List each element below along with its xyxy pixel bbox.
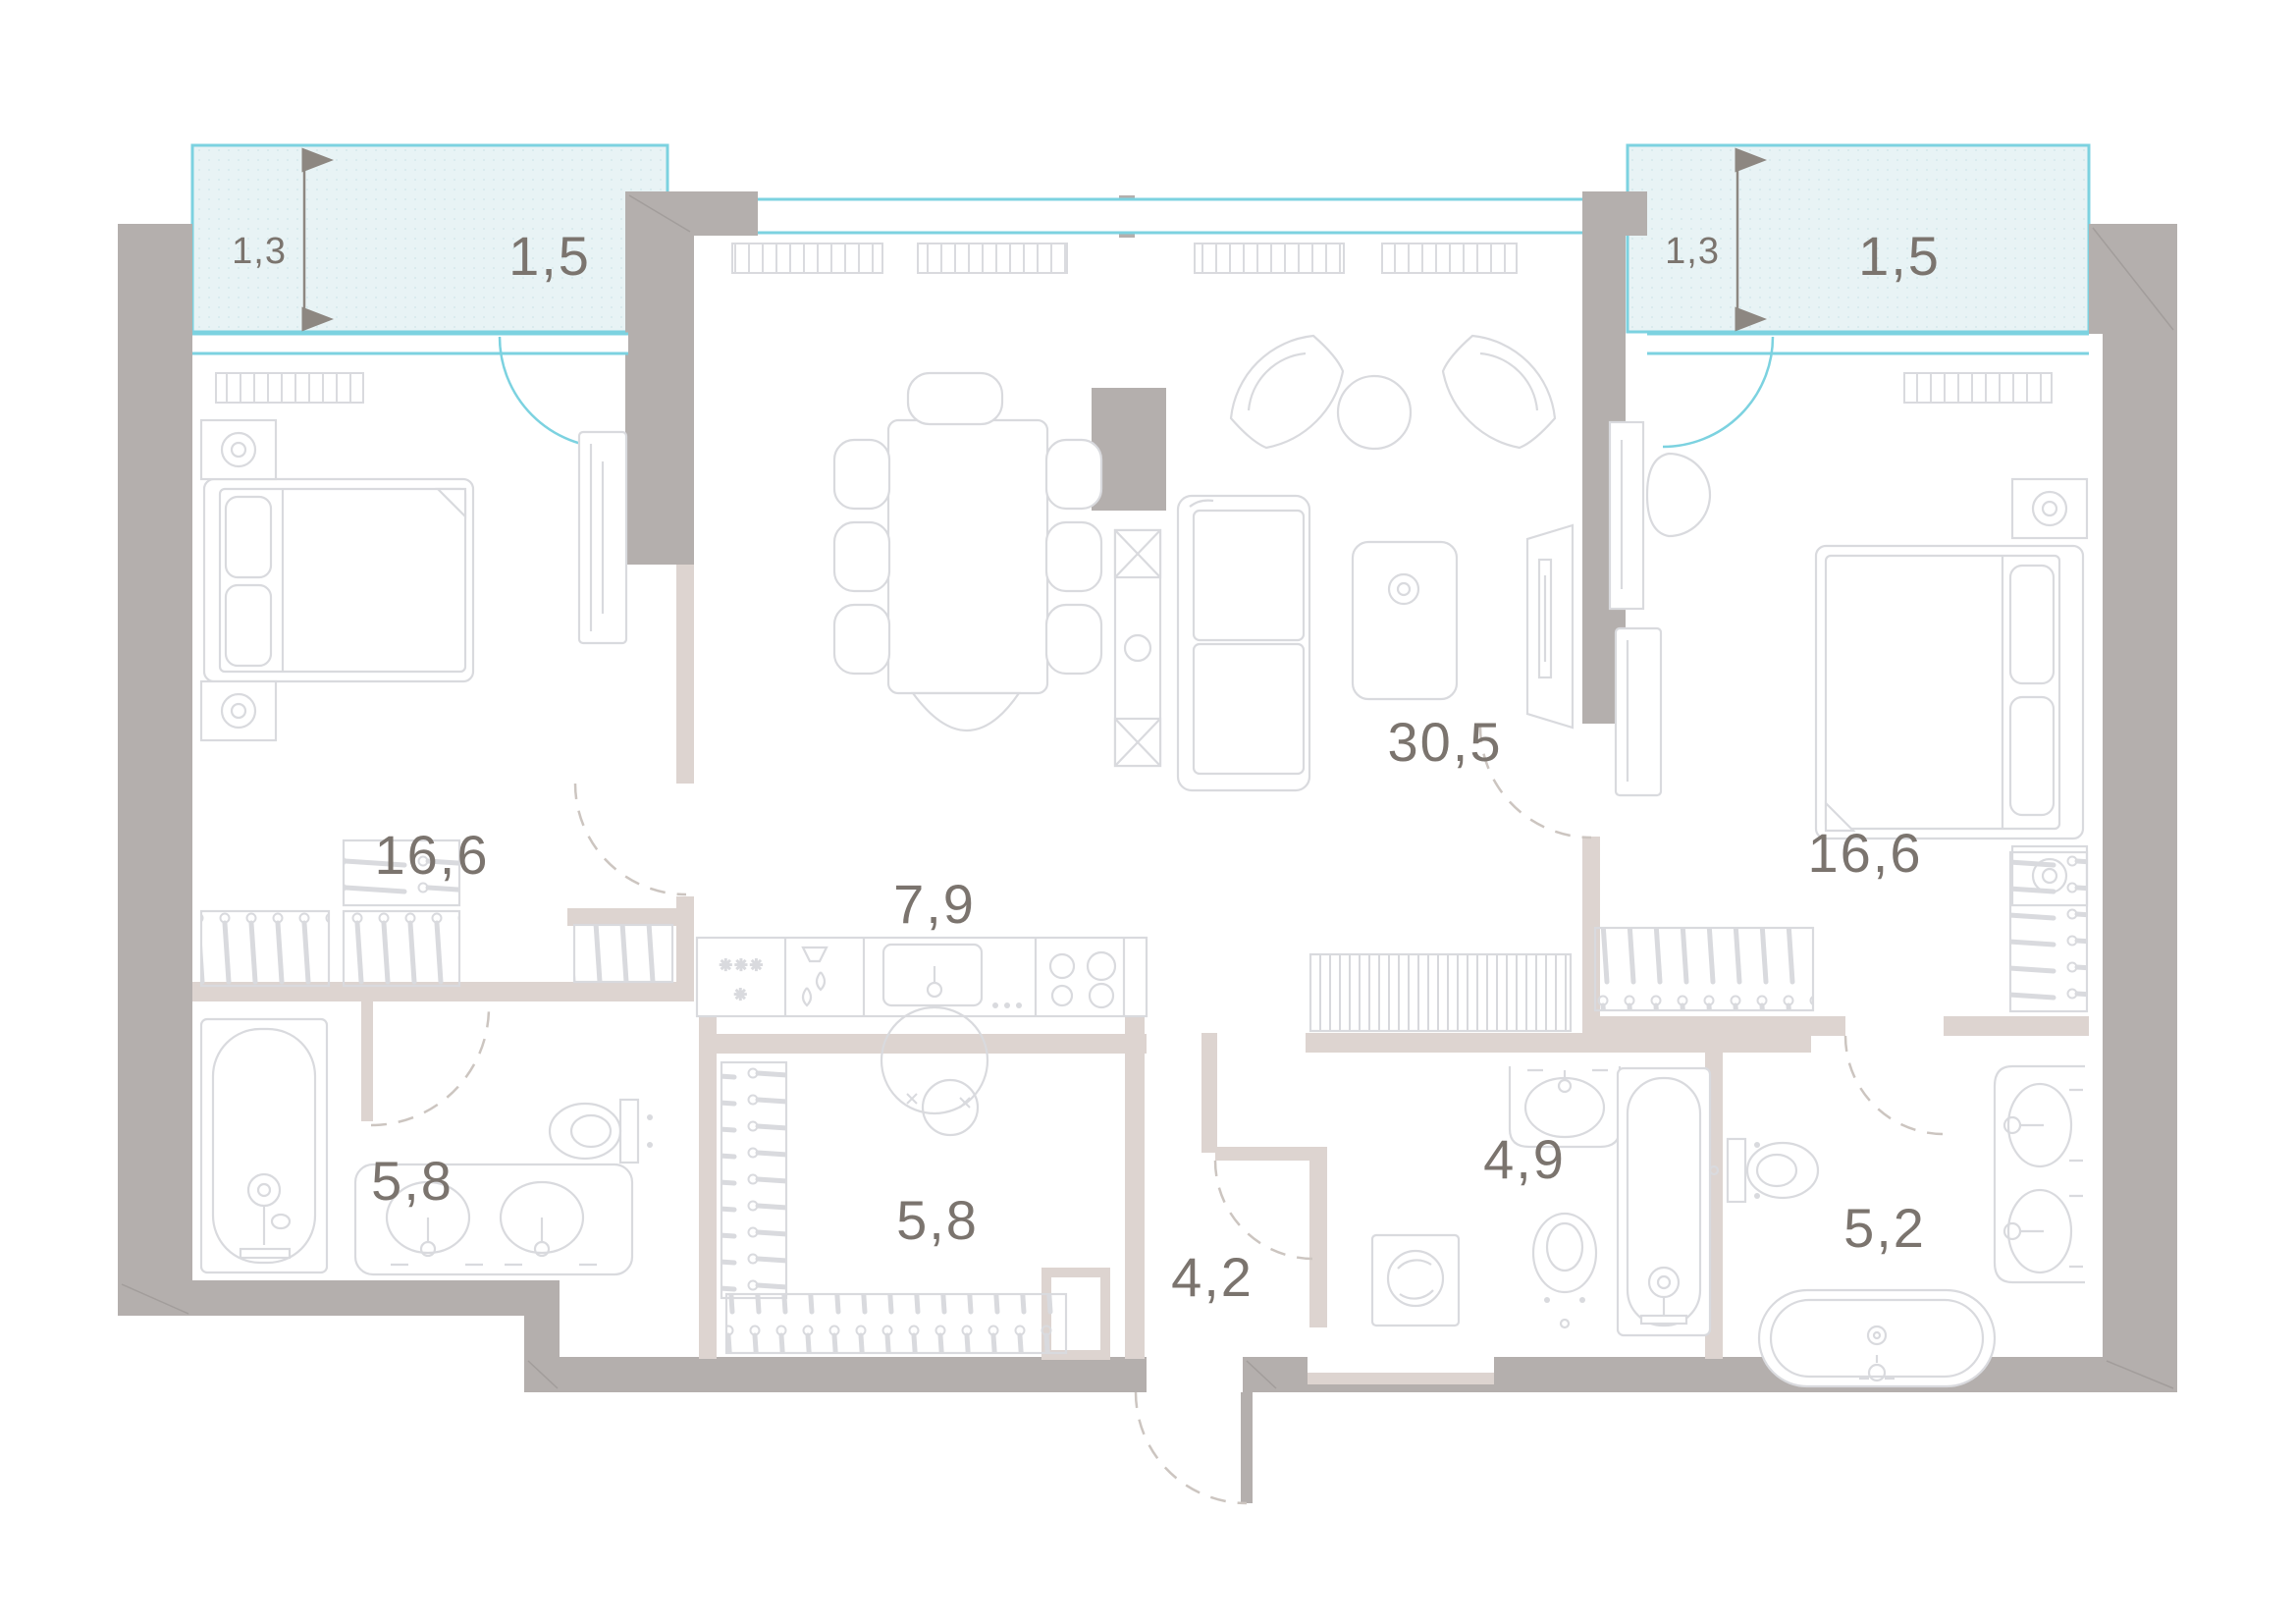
balcony-right-depth-label: 1,3	[1665, 231, 1720, 272]
chair-icon	[1046, 440, 1101, 509]
chair-icon	[913, 693, 1019, 731]
door-swing-bedroom-left	[575, 784, 686, 894]
armchair-icon	[1443, 336, 1555, 448]
dining-table-icon	[834, 373, 1101, 731]
window-bedroom-left	[192, 333, 628, 354]
coffee-table-icon	[1353, 542, 1457, 699]
nightstand-icon	[2012, 479, 2087, 538]
dressing-room-furniture	[721, 1062, 1066, 1353]
radiator-icon	[1904, 373, 2052, 403]
bathroom-guest-door-leaf	[1215, 1147, 1313, 1161]
chair-icon	[1046, 605, 1101, 674]
nightstand-icon	[201, 681, 276, 740]
room-label-living-room: 30,5	[1388, 711, 1503, 773]
radiator-icon	[216, 373, 363, 403]
door-swing-bathroom-left	[371, 1007, 489, 1125]
bathroom-left-fixtures	[201, 1019, 653, 1274]
floor-plan-canvas: 1,3 1,5 1,3 1,5	[0, 0, 2296, 1624]
living-room-furniture	[1115, 336, 1573, 790]
room-label-entrance-hall: 4,2	[1171, 1246, 1254, 1308]
door-swing-bathroom-guest	[1215, 1161, 1313, 1259]
room-label-dressing-room: 5,8	[896, 1189, 979, 1251]
double-sink-icon	[1995, 1066, 2085, 1282]
sofa-icon	[1178, 496, 1309, 790]
bathtub-icon	[201, 1019, 327, 1272]
toilet-icon	[1533, 1214, 1596, 1327]
door-swing-bathroom-master	[1845, 1036, 1944, 1134]
tv-console-icon	[1527, 525, 1573, 728]
floor-plan-drawing: 1,3 1,5 1,3 1,5	[0, 0, 2296, 1624]
room-label-bathroom-guest: 4,9	[1483, 1128, 1566, 1190]
kitchen-furniture: ✳✳✳ ✳	[697, 373, 1147, 1135]
chair-icon	[834, 440, 889, 509]
chair-icon	[908, 373, 1002, 424]
vanity-pouf-icon	[881, 1007, 988, 1135]
pillow-icon	[2010, 566, 2054, 683]
room-label-kitchen: 7,9	[893, 873, 976, 935]
balcony-right-area-label: 1,5	[1858, 225, 1941, 287]
kitchen-counter: ✳✳✳ ✳	[697, 938, 1147, 1016]
balcony-left-area-label: 1,5	[508, 225, 591, 287]
pillow-icon	[2010, 697, 2054, 815]
bathroom-left-door-leaf	[361, 1001, 373, 1121]
room-label-bathroom-master: 5,2	[1843, 1197, 1926, 1259]
nightstand-icon	[201, 420, 276, 479]
chair-icon	[834, 522, 889, 591]
radiator-icon	[1382, 244, 1517, 273]
chair-icon	[834, 605, 889, 674]
entry-wall-niche	[1308, 1327, 1494, 1373]
dresser-icon	[579, 432, 626, 643]
chair-icon	[1046, 522, 1101, 591]
toilet-icon	[1710, 1139, 1818, 1202]
bathtub-icon	[1759, 1290, 1995, 1386]
bed-icon	[204, 479, 473, 681]
toilet-icon	[550, 1100, 653, 1163]
side-table-icon	[1338, 376, 1411, 449]
desk-chair-icon	[1647, 454, 1710, 536]
balcony-left: 1,3 1,5	[192, 145, 667, 332]
room-label-bedroom-right: 16,6	[1808, 822, 1923, 884]
structural-column	[1092, 388, 1166, 511]
bathroom-guest-fixtures	[1372, 1066, 1710, 1335]
pillow-icon	[226, 497, 271, 577]
fridge-icon: ✳	[734, 987, 750, 1003]
bedroom-right-furniture	[1595, 422, 2087, 1011]
desk-icon	[1610, 422, 1643, 609]
armchair-icon	[1231, 336, 1343, 448]
entry-door-leaf	[1241, 1392, 1253, 1503]
window-bedroom-right	[1647, 333, 2089, 354]
pillow-icon	[226, 585, 271, 666]
shoe-rack-icon	[1310, 954, 1571, 1031]
bed-icon	[1816, 546, 2083, 839]
bathtub-icon	[1618, 1068, 1710, 1335]
dresser-icon	[1616, 628, 1661, 795]
radiator-icon	[918, 244, 1067, 273]
room-label-bedroom-left: 16,6	[375, 824, 490, 886]
window-living	[758, 199, 1582, 233]
fridge-icon: ✳✳✳	[720, 957, 766, 974]
wardrobe-hangers-icon	[726, 1294, 1066, 1353]
washing-machine-icon	[1372, 1235, 1459, 1326]
door-swing-entry	[1136, 1392, 1247, 1503]
balcony-left-depth-label: 1,3	[232, 231, 287, 272]
bedroom-left-furniture	[201, 420, 672, 986]
radiator-icon	[732, 244, 882, 273]
radiator-icon	[1195, 244, 1344, 273]
balcony-right: 1,3 1,5	[1628, 145, 2089, 332]
room-label-bathroom-left: 5,8	[371, 1150, 454, 1212]
tv-stand-icon	[1115, 530, 1160, 766]
wardrobe-hangers-icon	[721, 1062, 786, 1298]
